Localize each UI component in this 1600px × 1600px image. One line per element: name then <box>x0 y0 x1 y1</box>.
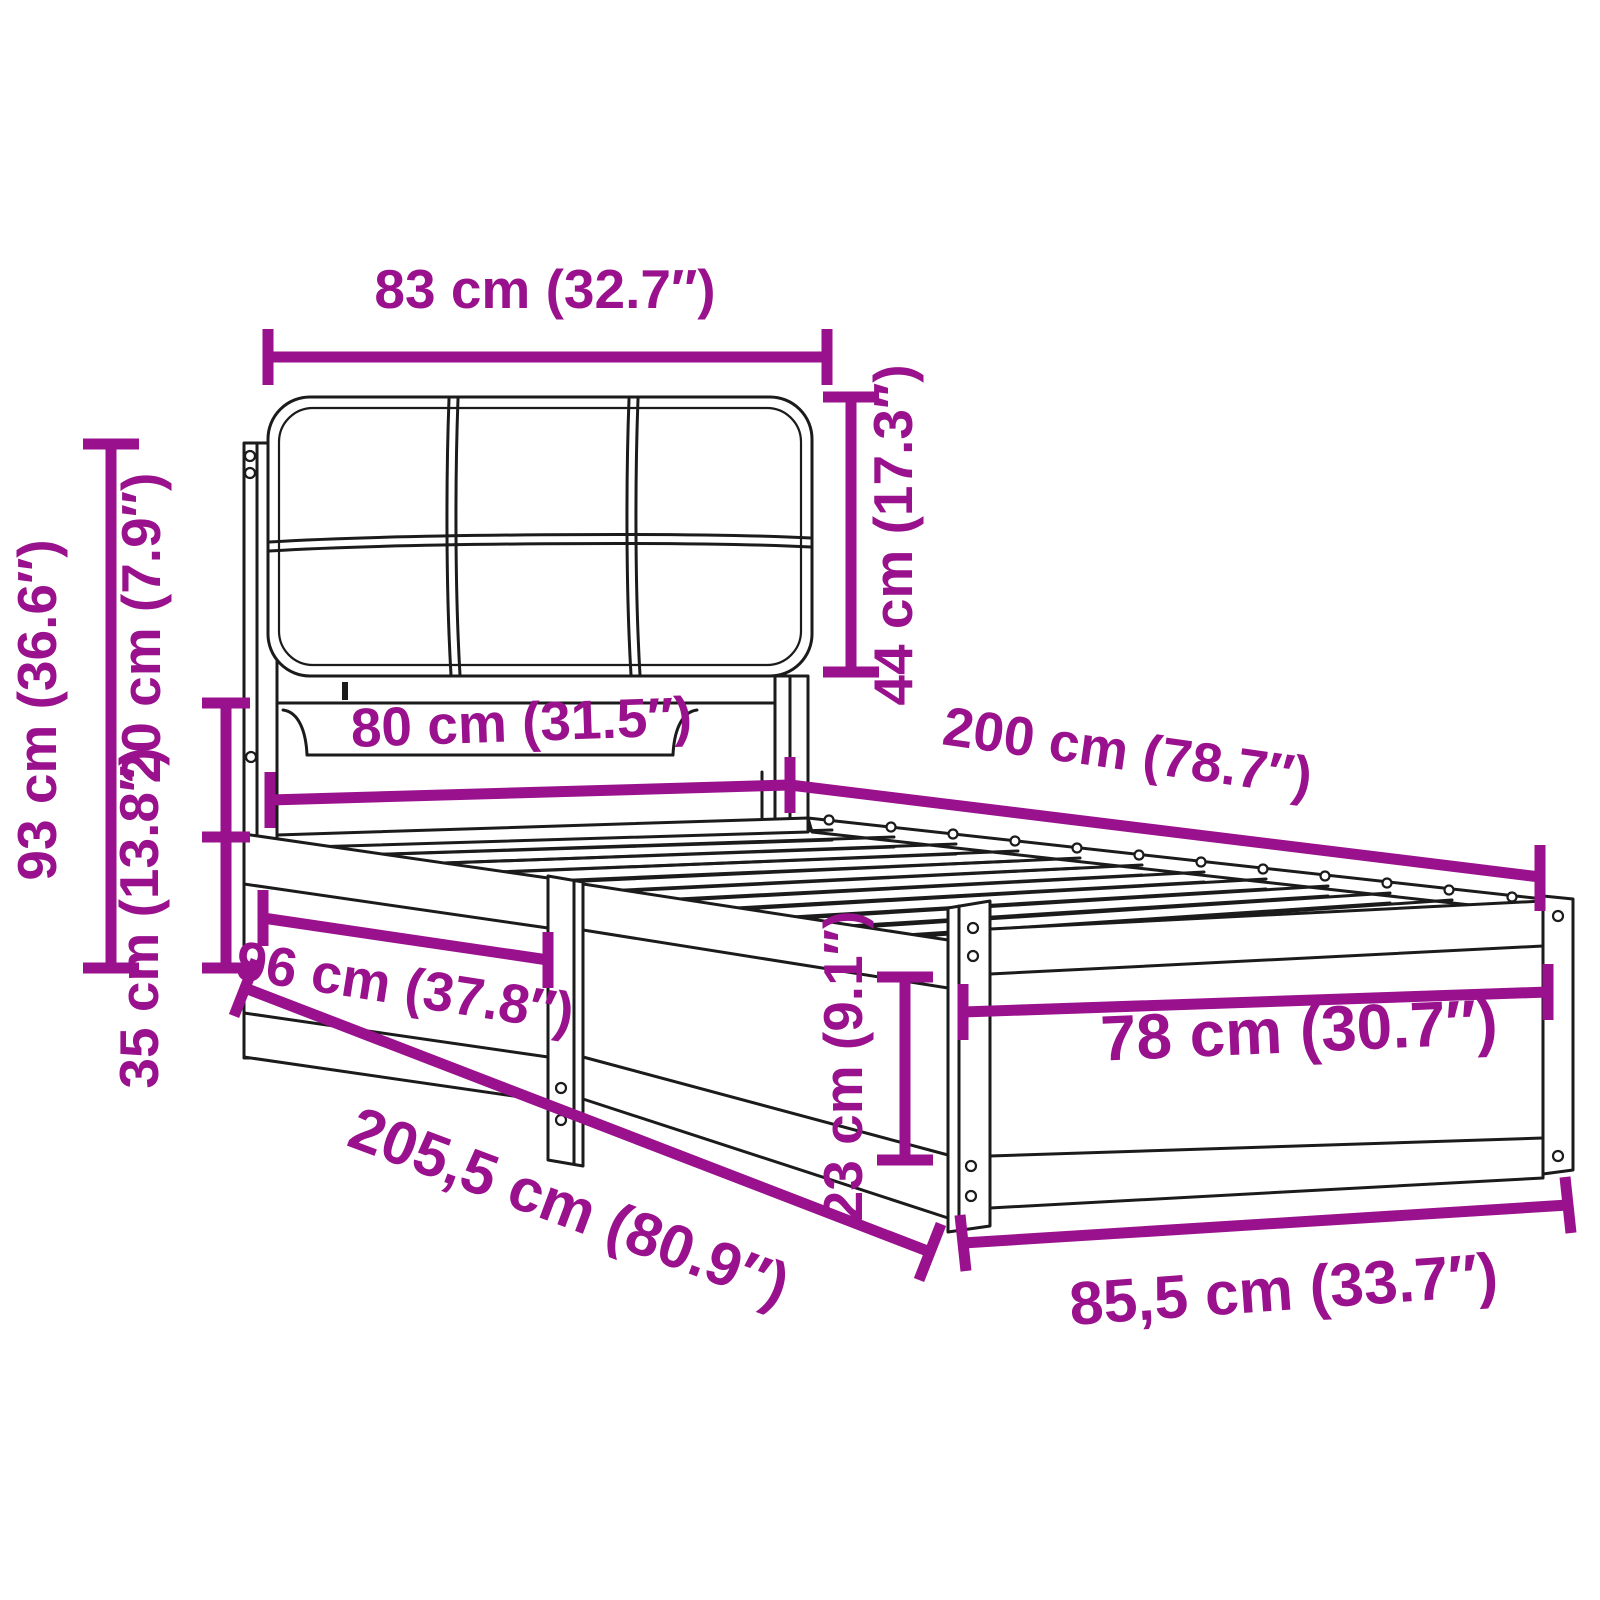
dim-cushion-height: 44 cm (17.3″) <box>823 364 924 705</box>
screw-icon <box>245 468 255 478</box>
cushion-strap <box>342 682 348 700</box>
dim-label-headboard-clearance: 20 cm (7.9″) <box>110 473 172 784</box>
screw-icon <box>968 951 978 961</box>
bed-dimension-diagram: 83 cm (32.7″) 44 cm (17.3″) 93 cm (36.6″… <box>0 0 1600 1600</box>
dim-mattress-length: 200 cm (78.7″) <box>790 695 1540 911</box>
screw-icon <box>1553 911 1563 921</box>
screw-icon <box>966 1161 976 1171</box>
foot-corner-post <box>948 901 990 1232</box>
dim-label-mattress-width: 80 cm (31.5″) <box>350 685 693 759</box>
headboard-cushion <box>268 397 812 700</box>
dim-label-headboard-width: 83 cm (32.7″) <box>374 258 715 320</box>
dim-label-base-height: 35 cm (13.8″) <box>108 747 170 1088</box>
dim-label-foot-rail-height: 23 cm (9.1″) <box>812 911 874 1222</box>
dim-label-total-width: 85,5 cm (33.7″) <box>1067 1240 1500 1338</box>
side-rail-foot-section <box>583 884 948 1218</box>
dim-label-cushion-height: 44 cm (17.3″) <box>862 364 924 705</box>
dim-label-mattress-length: 200 cm (78.7″) <box>939 695 1316 808</box>
screw-icon <box>1553 1151 1563 1161</box>
post-body <box>948 901 990 1232</box>
diagram-canvas: 83 cm (32.7″) 44 cm (17.3″) 93 cm (36.6″… <box>0 0 1600 1600</box>
foot-right-trim <box>1543 896 1573 1174</box>
screw-icon <box>966 1191 976 1201</box>
screw-icon <box>556 1083 566 1093</box>
screw-icon <box>246 752 256 762</box>
screw-icon <box>968 923 978 933</box>
screw-icon <box>245 451 255 461</box>
dim-label-total-height: 93 cm (36.6″) <box>6 539 68 880</box>
trim-body <box>1543 896 1573 1174</box>
side-face <box>583 884 948 1218</box>
dim-headboard-width: 83 cm (32.7″) <box>268 258 827 385</box>
dim-mattress-width: 80 cm (31.5″) <box>270 685 790 828</box>
